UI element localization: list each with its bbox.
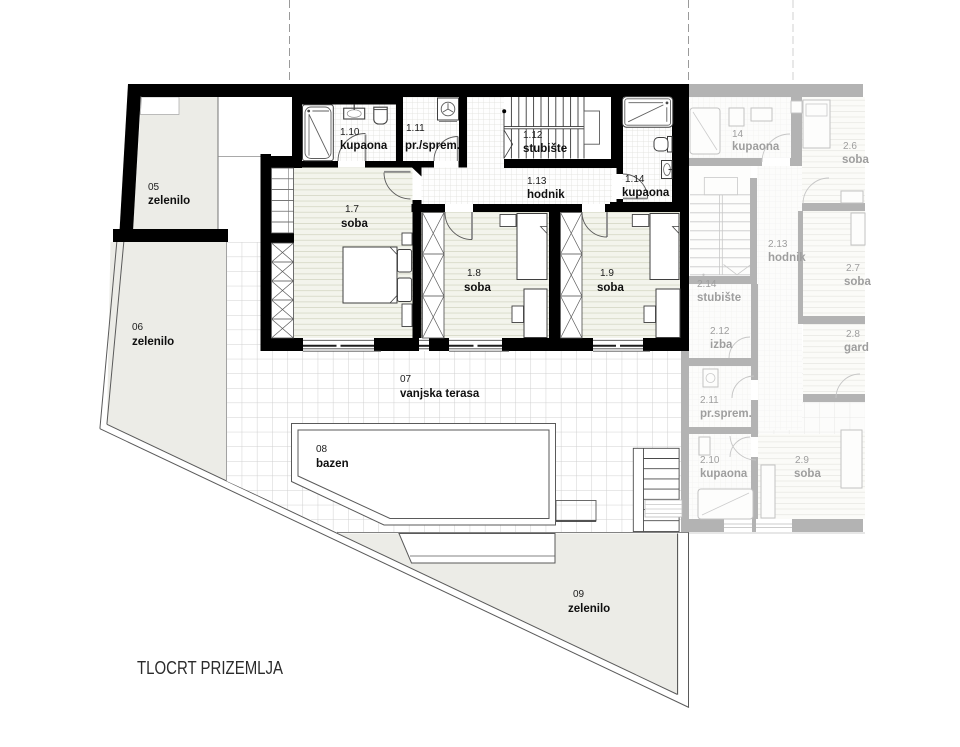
svg-text:soba: soba xyxy=(842,154,869,166)
svg-text:kupaona: kupaona xyxy=(340,140,388,152)
svg-text:1.13: 1.13 xyxy=(527,176,547,187)
svg-text:pr./sprem.: pr./sprem. xyxy=(405,140,460,152)
svg-text:2.8: 2.8 xyxy=(846,329,860,340)
svg-text:06: 06 xyxy=(132,322,144,333)
svg-text:soba: soba xyxy=(341,218,368,230)
svg-text:1.14: 1.14 xyxy=(625,174,645,185)
svg-text:hodnik: hodnik xyxy=(527,189,565,201)
svg-text:1.9: 1.9 xyxy=(600,268,614,279)
svg-text:2.7: 2.7 xyxy=(846,263,860,274)
svg-text:bazen: bazen xyxy=(316,458,349,470)
svg-text:2.11: 2.11 xyxy=(700,395,719,406)
svg-text:2.14: 2.14 xyxy=(697,279,717,290)
svg-text:TLOCRT PRIZEMLJA: TLOCRT PRIZEMLJA xyxy=(137,658,283,678)
svg-text:izba: izba xyxy=(710,339,733,351)
svg-text:07: 07 xyxy=(400,374,412,385)
svg-text:soba: soba xyxy=(844,276,871,288)
svg-text:soba: soba xyxy=(794,468,821,480)
svg-text:2.6: 2.6 xyxy=(843,141,857,152)
svg-text:gard: gard xyxy=(844,342,869,354)
svg-text:zelenilo: zelenilo xyxy=(568,603,610,615)
svg-text:1.11: 1.11 xyxy=(406,123,425,134)
svg-text:zelenilo: zelenilo xyxy=(148,195,190,207)
svg-text:stubište: stubište xyxy=(523,143,567,155)
svg-text:1.12: 1.12 xyxy=(523,130,543,141)
svg-text:2.10: 2.10 xyxy=(700,455,720,466)
svg-text:kupaona: kupaona xyxy=(700,468,748,480)
svg-text:14: 14 xyxy=(732,129,744,140)
svg-text:soba: soba xyxy=(464,282,491,294)
svg-text:08: 08 xyxy=(316,444,328,455)
svg-text:1.8: 1.8 xyxy=(467,268,481,279)
svg-text:kupaona: kupaona xyxy=(622,187,670,199)
svg-text:soba: soba xyxy=(597,282,624,294)
svg-text:zelenilo: zelenilo xyxy=(132,336,174,348)
svg-text:05: 05 xyxy=(148,182,160,193)
svg-text:kupaona: kupaona xyxy=(732,141,780,153)
svg-text:1.7: 1.7 xyxy=(345,204,359,215)
svg-text:1.10: 1.10 xyxy=(340,127,360,138)
svg-text:pr.sprem.: pr.sprem. xyxy=(700,408,752,420)
svg-text:stubište: stubište xyxy=(697,292,741,304)
svg-text:2.9: 2.9 xyxy=(795,455,809,466)
svg-text:2.13: 2.13 xyxy=(768,239,788,250)
svg-text:09: 09 xyxy=(573,589,585,600)
svg-text:2.12: 2.12 xyxy=(710,326,730,337)
svg-text:vanjska terasa: vanjska terasa xyxy=(400,388,480,400)
svg-text:hodnik: hodnik xyxy=(768,252,806,264)
